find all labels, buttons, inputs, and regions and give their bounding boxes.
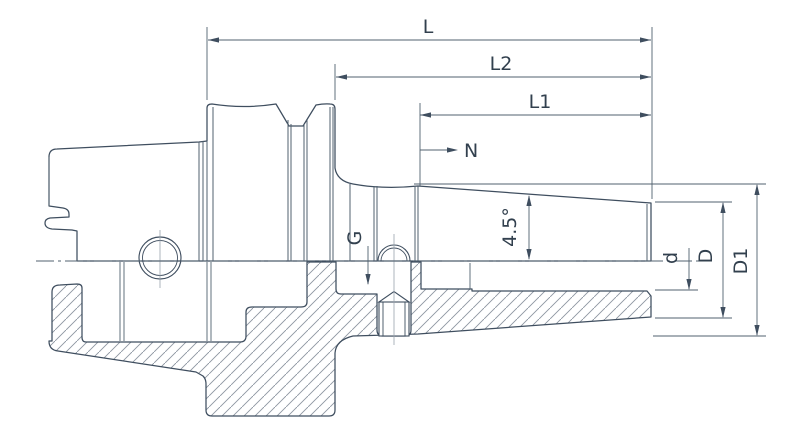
label-G: G (344, 231, 366, 246)
label-d: d (660, 252, 682, 264)
technical-drawing-page: L L2 L1 N 4.5° G d D D1 (0, 0, 812, 441)
label-L2: L2 (490, 53, 513, 75)
label-L1: L1 (529, 91, 552, 113)
label-L: L (423, 16, 434, 38)
label-D1: D1 (730, 248, 752, 275)
label-angle: 4.5° (499, 207, 521, 247)
label-N: N (464, 140, 478, 162)
tool-holder-drawing: L L2 L1 N 4.5° G d D D1 (0, 0, 812, 441)
section-lower-half (49, 262, 651, 416)
section-material (49, 262, 651, 416)
label-D: D (695, 249, 717, 264)
